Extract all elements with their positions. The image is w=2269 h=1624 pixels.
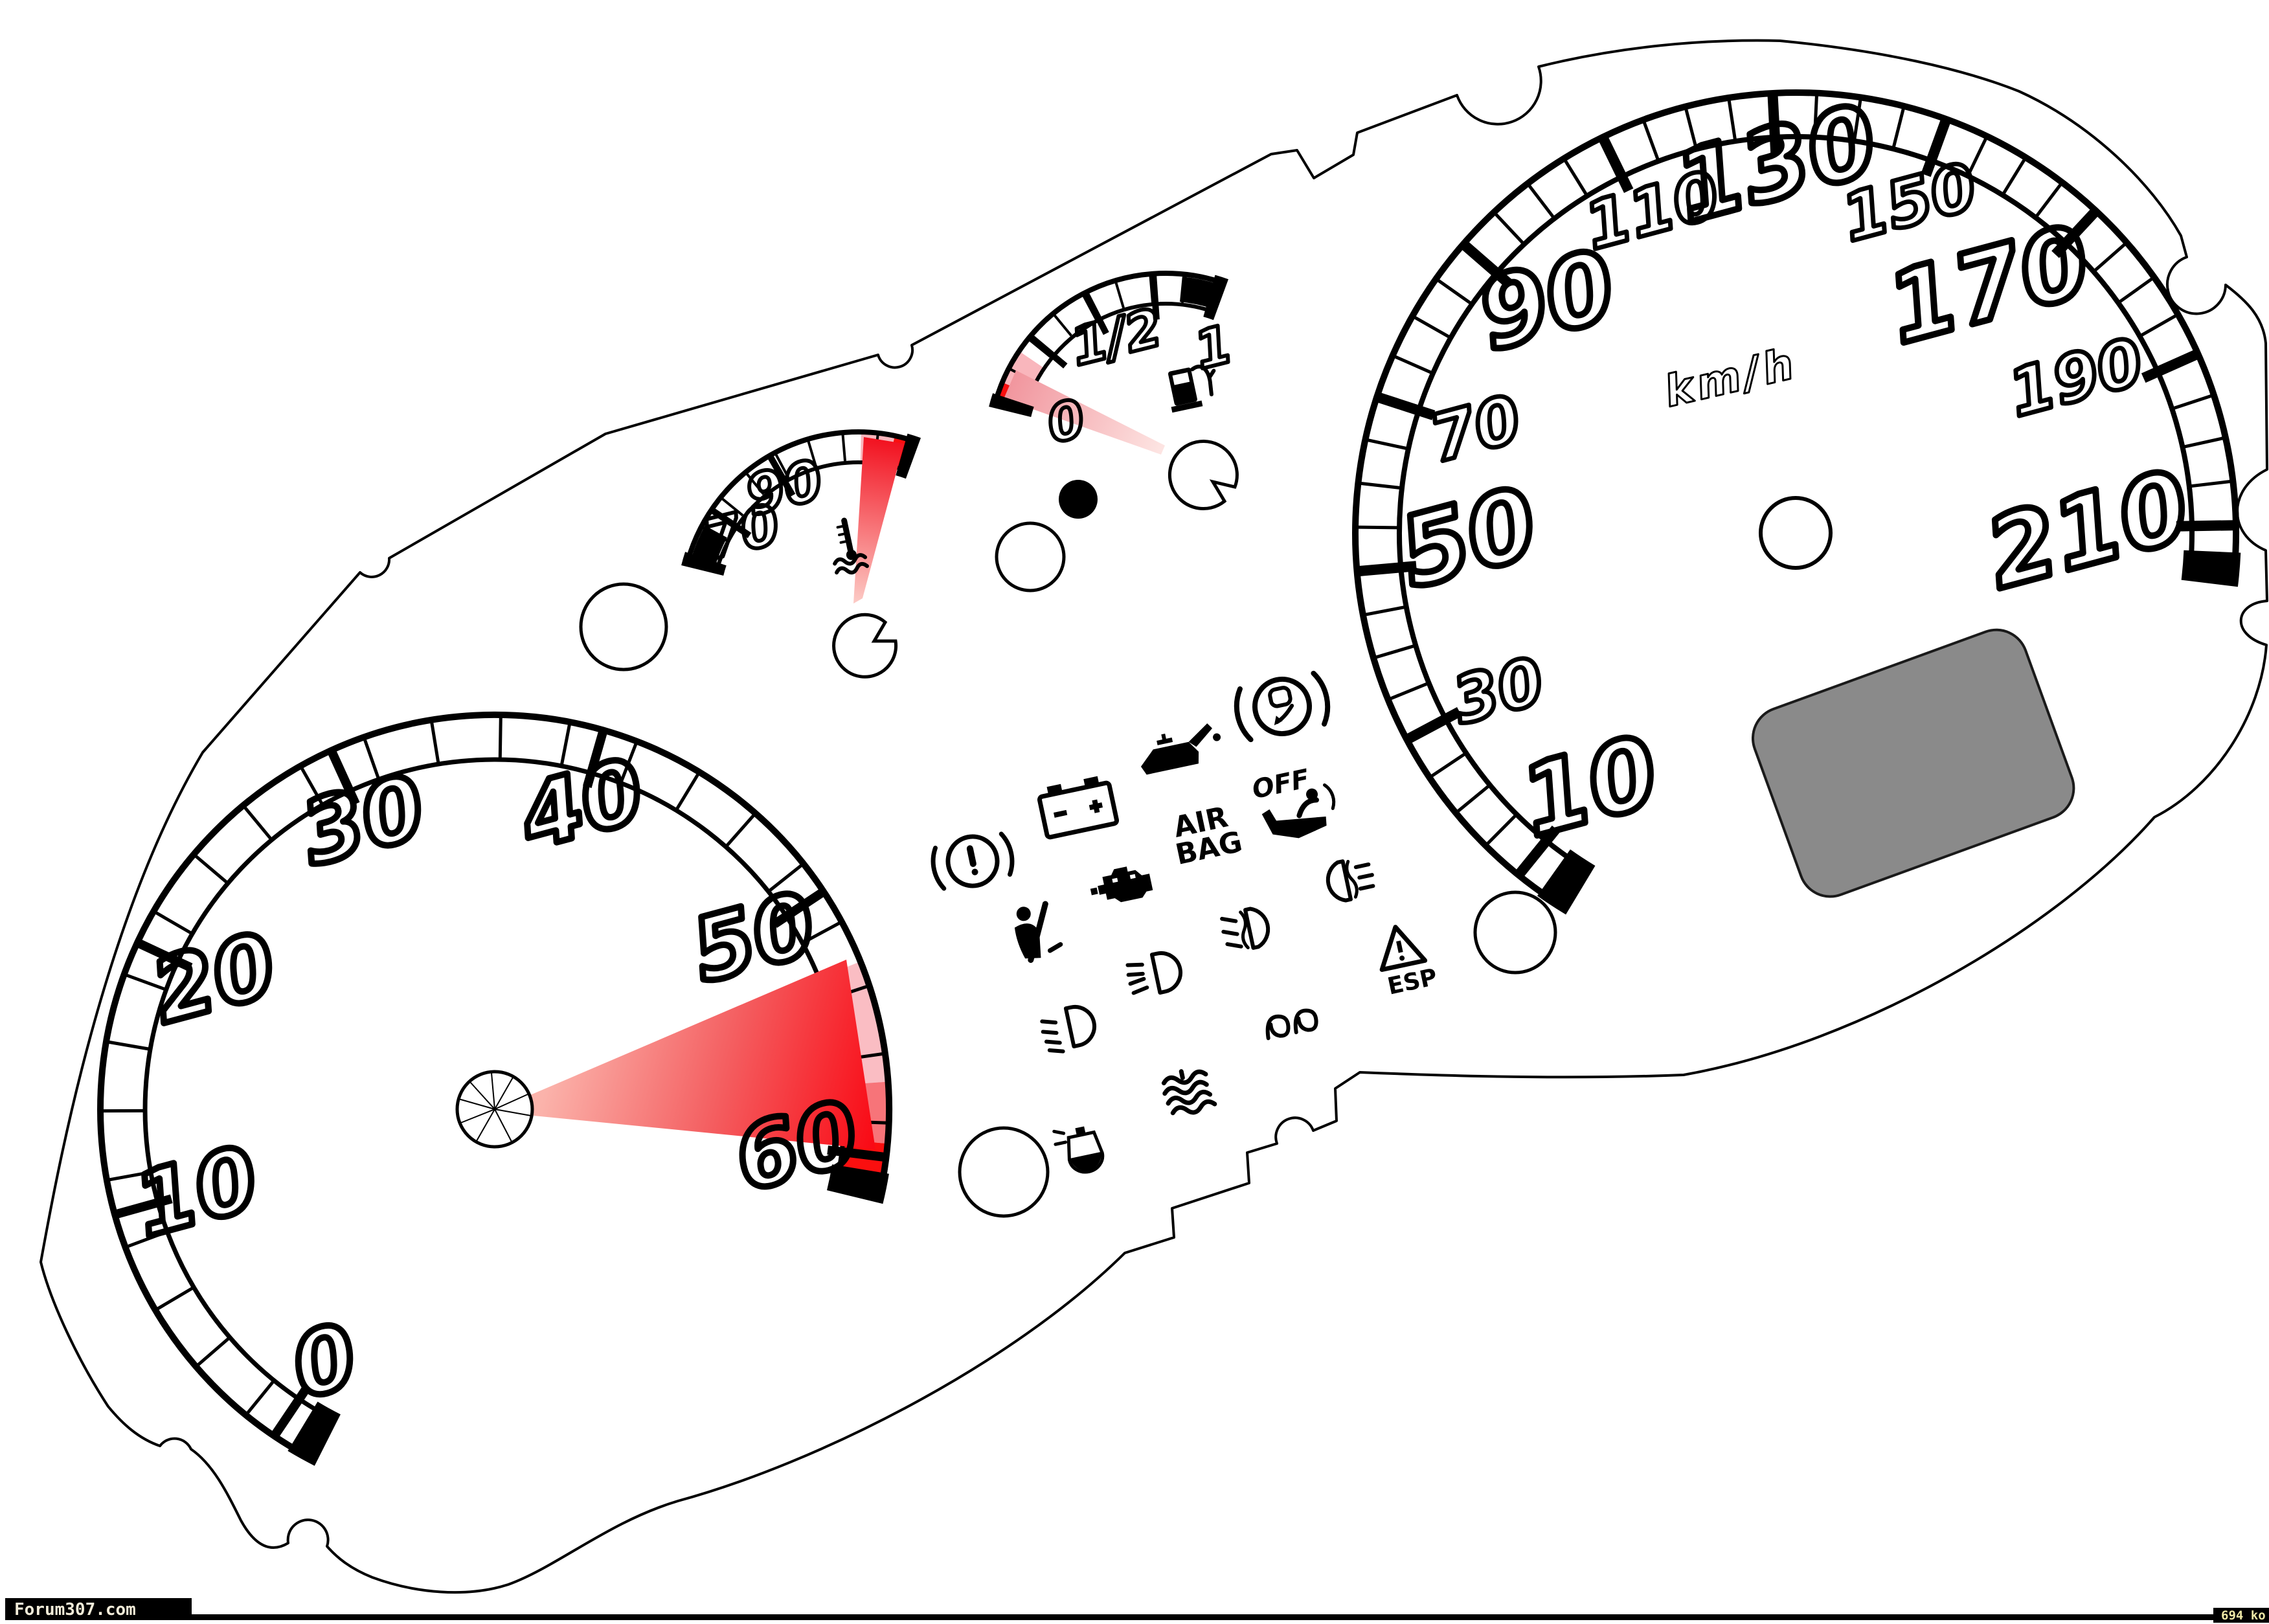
cluster-faceplate-image: 0102030405060 7090 [0, 0, 2269, 1624]
hole-below-fuel [997, 523, 1064, 591]
filesize-label: 694 ko [2221, 1608, 2266, 1623]
tach-hub [457, 1072, 532, 1147]
hole-right-of-icons [1475, 892, 1555, 973]
bottom-strip: Forum307.com 694 ko [5, 1598, 2269, 1623]
black-dot-marker [1059, 480, 1098, 519]
bottom-line [192, 1614, 2221, 1620]
watermark-site: Forum307.com [14, 1600, 136, 1619]
speedo-hub [1761, 498, 1831, 568]
hole-bottom-center [960, 1128, 1048, 1216]
screw-hole-left [581, 584, 666, 670]
